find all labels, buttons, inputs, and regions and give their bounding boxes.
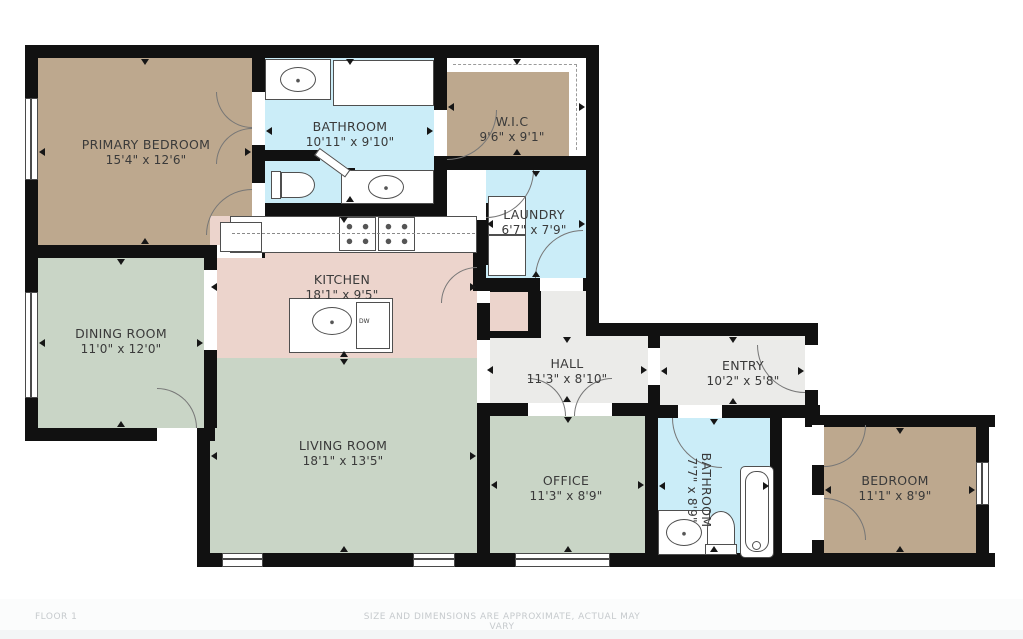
- dimension-marker: [710, 546, 718, 552]
- wall-segment: [25, 180, 38, 292]
- room-name: ENTRY: [707, 358, 780, 373]
- dimension-marker: [340, 546, 348, 552]
- floor-label: FLOOR 1: [35, 612, 77, 622]
- wall-segment: [197, 553, 222, 567]
- wall-segment: [204, 350, 217, 428]
- room-dims: 10'11" x 9'10": [306, 135, 395, 149]
- dimension-marker: [969, 486, 975, 494]
- dimension-marker: [448, 103, 454, 111]
- dimension-marker: [117, 259, 125, 265]
- wall-segment: [976, 415, 989, 462]
- door-opening: [812, 425, 824, 465]
- room-label-laundry: LAUNDRY 6'7" x 7'9": [501, 207, 566, 237]
- door-opening: [678, 405, 722, 418]
- dimension-marker: [346, 59, 354, 65]
- room-dims: 11'3" x 8'10": [527, 372, 608, 386]
- dryer-icon: [488, 235, 526, 276]
- room-area-hall-extension: [541, 291, 586, 336]
- dishwasher: [356, 302, 390, 349]
- dimension-marker: [39, 148, 45, 156]
- wall-segment: [812, 465, 824, 495]
- room-name: LIVING ROOM: [299, 438, 387, 453]
- room-dims: 6'7" x 7'9": [501, 223, 566, 237]
- dimension-marker: [579, 103, 585, 111]
- bathtub-drain: [752, 541, 761, 550]
- door-opening: [473, 170, 486, 220]
- dimension-marker: [532, 171, 540, 177]
- room-label-wic: W.I.C 9'6" x 9'1": [479, 114, 544, 144]
- dimension-marker: [729, 398, 737, 404]
- wall-segment: [25, 245, 217, 258]
- room-label-kitchen: KITCHEN 18'1" x 9'5": [306, 272, 379, 302]
- wall-segment: [812, 415, 824, 425]
- door-opening: [252, 92, 265, 145]
- dimension-marker: [513, 59, 521, 65]
- wall-segment: [197, 428, 210, 553]
- wall-segment: [648, 323, 660, 348]
- room-dims: 11'1" x 8'9": [859, 489, 932, 503]
- window-icon: [976, 462, 989, 505]
- wall-segment: [528, 285, 541, 338]
- stove-icon: [378, 217, 415, 251]
- wall-segment: [477, 403, 490, 567]
- dimension-marker: [564, 417, 572, 423]
- toilet-tank-icon: [271, 171, 281, 199]
- wall-segment: [25, 428, 157, 441]
- room-name: HALL: [527, 356, 608, 371]
- room-name: LAUNDRY: [501, 207, 566, 222]
- floor-plan: DW PRIMARY BEDROOM 15'4" x 12'6" BATHROO…: [0, 0, 1023, 639]
- dimension-marker: [427, 127, 433, 135]
- sink-icon: [280, 67, 316, 92]
- dimension-marker: [763, 482, 769, 490]
- door-opening: [204, 270, 217, 350]
- window-icon: [222, 553, 263, 567]
- room-label-bathroom-1: BATHROOM 10'11" x 9'10": [306, 119, 395, 149]
- wall-segment: [477, 303, 490, 340]
- dimension-marker: [563, 337, 571, 343]
- room-name: DINING ROOM: [75, 326, 167, 341]
- room-name: KITCHEN: [306, 272, 379, 287]
- dimension-marker: [211, 452, 217, 460]
- wall-segment: [263, 553, 413, 567]
- door-opening: [805, 345, 818, 390]
- door-opening: [812, 495, 824, 540]
- dimension-marker: [659, 482, 665, 490]
- wall-segment: [252, 145, 265, 183]
- dishwasher-label: DW: [359, 318, 370, 325]
- room-dims: 9'6" x 9'1": [479, 130, 544, 144]
- dimension-marker: [340, 351, 348, 357]
- wall-segment: [473, 156, 486, 170]
- room-dims: 11'3" x 8'9": [530, 489, 603, 503]
- dimension-marker: [491, 481, 497, 489]
- wall-segment: [976, 505, 989, 567]
- dimension-marker: [825, 486, 831, 494]
- dimension-marker: [197, 339, 203, 347]
- wall-segment: [610, 553, 995, 567]
- counter-dash: [232, 233, 475, 234]
- dimension-marker: [340, 217, 348, 223]
- wall-segment: [593, 323, 818, 336]
- room-label-hall: HALL 11'3" x 8'10": [527, 356, 608, 386]
- wall-segment: [805, 323, 818, 345]
- dimension-marker: [532, 271, 540, 277]
- room-name: BATHROOM: [306, 119, 395, 134]
- room-area-pantry: [490, 292, 528, 331]
- dimension-marker: [638, 481, 644, 489]
- room-name: OFFICE: [530, 473, 603, 488]
- wall-segment: [805, 390, 818, 418]
- window-icon: [413, 553, 455, 567]
- disclaimer-text: SIZE AND DIMENSIONS ARE APPROXIMATE, ACT…: [352, 612, 652, 632]
- wall-segment: [586, 45, 599, 291]
- room-label-entry: ENTRY 10'2" x 5'8": [707, 358, 780, 388]
- wall-segment: [434, 156, 447, 216]
- door-opening: [648, 348, 660, 385]
- dimension-marker: [340, 359, 348, 365]
- window-icon: [25, 292, 38, 398]
- wall-segment: [648, 385, 660, 416]
- dimension-marker: [579, 220, 585, 228]
- dimension-marker: [729, 337, 737, 343]
- window-icon: [25, 98, 38, 180]
- dimension-marker: [564, 546, 572, 552]
- dimension-marker: [470, 452, 476, 460]
- dimension-marker: [710, 419, 718, 425]
- wall-segment: [586, 291, 599, 336]
- wall-segment: [265, 150, 320, 161]
- dimension-marker: [487, 220, 493, 228]
- room-label-dining: DINING ROOM 11'0" x 12'0": [75, 326, 167, 356]
- room-label-bathroom-2: BATHROOM 7'7" x 8'9": [684, 453, 714, 528]
- shower: [333, 60, 434, 106]
- dimension-marker: [141, 238, 149, 244]
- dimension-marker: [211, 283, 217, 291]
- dimension-marker: [563, 396, 571, 402]
- wall-segment: [25, 45, 38, 98]
- sink-icon: [368, 175, 404, 199]
- dimension-marker: [470, 283, 476, 291]
- door-opening: [540, 278, 583, 291]
- wall-segment: [645, 416, 658, 567]
- wall-segment: [252, 45, 265, 92]
- room-label-office: OFFICE 11'3" x 8'9": [530, 473, 603, 503]
- room-name: BEDROOM: [859, 473, 932, 488]
- dimension-marker: [896, 546, 904, 552]
- dimension-marker: [798, 367, 804, 375]
- dimension-marker: [661, 367, 667, 375]
- room-dims: 7'7" x 8'9": [685, 453, 699, 528]
- wall-segment: [812, 540, 824, 567]
- dimension-marker: [245, 148, 251, 156]
- dimension-marker: [896, 428, 904, 434]
- room-label-living: LIVING ROOM 18'1" x 13'5": [299, 438, 387, 468]
- room-dims: 18'1" x 13'5": [299, 454, 387, 468]
- sink-icon: [312, 307, 352, 335]
- room-dims: 10'2" x 5'8": [707, 374, 780, 388]
- room-label-bedroom-2: BEDROOM 11'1" x 8'9": [859, 473, 932, 503]
- toilet-icon: [281, 172, 315, 198]
- dimension-marker: [346, 196, 354, 202]
- door-opening: [434, 110, 447, 156]
- dimension-marker: [513, 149, 521, 155]
- room-name: PRIMARY BEDROOM: [82, 137, 211, 152]
- wall-segment: [434, 45, 447, 110]
- dimension-marker: [39, 339, 45, 347]
- room-name: W.I.C: [479, 114, 544, 129]
- wall-segment: [204, 245, 217, 270]
- room-label-primary-bedroom: PRIMARY BEDROOM 15'4" x 12'6": [82, 137, 211, 167]
- dimension-marker: [117, 421, 125, 427]
- dimension-marker: [266, 127, 272, 135]
- dimension-marker: [141, 59, 149, 65]
- room-dims: 15'4" x 12'6": [82, 153, 211, 167]
- room-dims: 11'0" x 12'0": [75, 342, 167, 356]
- dimension-marker: [487, 366, 493, 374]
- door-opening: [157, 428, 197, 441]
- dimension-marker: [641, 366, 647, 374]
- room-dims: 18'1" x 9'5": [306, 288, 379, 302]
- room-name: BATHROOM: [699, 453, 714, 528]
- wall-segment: [25, 45, 599, 58]
- wall-segment: [25, 398, 38, 441]
- window-icon: [515, 553, 610, 567]
